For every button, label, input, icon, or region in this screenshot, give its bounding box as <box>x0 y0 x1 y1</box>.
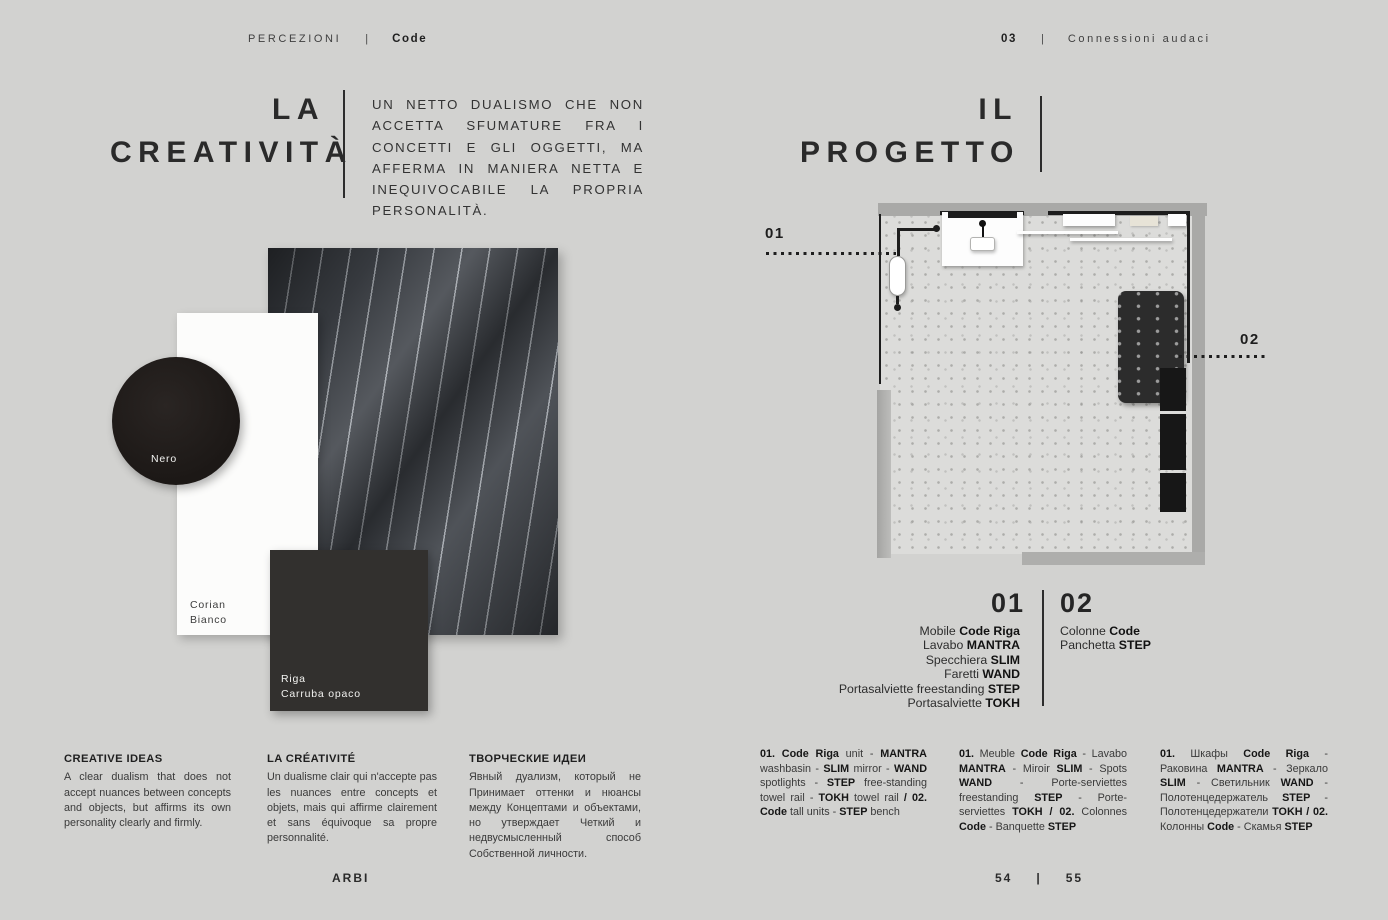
nero-label: Nero <box>151 452 177 467</box>
plan-wall-right <box>1192 203 1205 560</box>
tall-unit-2 <box>1160 414 1186 470</box>
legend-list-01: Mobile Code Riga Lavabo MANTRA Specchier… <box>790 624 1020 710</box>
callout-01-label: 01 <box>765 225 785 242</box>
chapter-label: Connessioni audaci <box>1068 33 1211 45</box>
page-numbers: 54 | 55 <box>995 871 1083 885</box>
washbasin-backsplash <box>948 212 1017 218</box>
callout-02-label: 02 <box>1240 331 1260 348</box>
column-fr: LA CRÉATIVITÉ Un dualisme clair qui n'ac… <box>267 752 437 847</box>
collection-label: Code <box>392 33 427 45</box>
plan-desc-fr: 01. Meuble Code Riga - Lavabo MANTRA - M… <box>959 747 1127 835</box>
header-divider: | <box>365 33 368 45</box>
towel-rail-post <box>897 228 900 256</box>
plan-desc-en: 01. Code Riga unit - MANTRA washbasin - … <box>760 747 927 820</box>
legend-item: Lavabo MANTRA <box>790 638 1020 652</box>
shelf-beige <box>1130 216 1158 226</box>
freestanding-rail-pill <box>889 256 906 296</box>
legend-item: Colonne Code <box>1060 624 1230 638</box>
legend-divider <box>1042 590 1044 706</box>
page-number-right: 55 <box>1066 871 1083 885</box>
mirror-slim <box>1017 231 1118 234</box>
column-fr-body: Un dualisme clair qui n'accepte pas les … <box>267 770 437 846</box>
tall-unit-3 <box>1160 473 1186 512</box>
riga-label: Riga Carruba opaco <box>281 672 361 702</box>
basin-bowl <box>970 237 995 251</box>
column-fr-title: LA CRÉATIVITÉ <box>267 752 437 767</box>
legend-item: Mobile Code Riga <box>790 624 1020 638</box>
shelf-b <box>1168 214 1186 226</box>
towel-rail-arm <box>897 228 936 231</box>
brand-label: ARBI <box>332 871 369 885</box>
rail-stub <box>896 296 899 304</box>
column-ru-body: Явный дуализм, который не Принимает отте… <box>469 770 641 862</box>
plan-innerwall-left <box>879 214 881 384</box>
legend-list-02: Colonne Code Panchetta STEP <box>1060 624 1230 653</box>
floor-plan: 01 02 <box>758 195 1288 580</box>
intro-paragraph: UN NETTO DUALISMO CHE NON ACCETTA SFUMAT… <box>372 94 644 222</box>
legend-number-02: 02 <box>1060 588 1094 619</box>
page-title-creativita: LA CREATIVITÀ <box>110 88 325 174</box>
chapter-number: 03 <box>1001 33 1017 45</box>
page-number-divider: | <box>1036 871 1041 885</box>
title-rule-right <box>1040 96 1042 172</box>
header-right: 03 | Connessioni audaci <box>1001 33 1211 45</box>
corian-label: Corian Bianco <box>190 598 227 628</box>
legend-item: Specchiera SLIM <box>790 653 1020 667</box>
callout-01-leader <box>766 252 896 255</box>
towel-rail-end-dot <box>933 225 940 232</box>
legend-item: Portasalviette freestanding STEP <box>790 682 1020 696</box>
plan-desc-ru: 01. Шкафы Code Riga - Раковина MANTRA - … <box>1160 747 1328 835</box>
towel-rail-tokh <box>1070 238 1172 241</box>
title-rule-left <box>343 90 345 198</box>
page-number-left: 54 <box>995 871 1012 885</box>
plan-wall-bottom <box>1022 552 1205 565</box>
tall-unit-1 <box>1160 368 1186 411</box>
washbasin-unit <box>942 212 1023 266</box>
section-label: PERCEZIONI <box>248 33 341 45</box>
header-divider: | <box>1041 33 1044 45</box>
callout-02-leader <box>1179 355 1268 358</box>
column-en-title: CREATIVE IDEAS <box>64 752 231 767</box>
page-title-progetto: IL PROGETTO <box>800 88 1018 174</box>
column-en-body: A clear dualism that does not accept nua… <box>64 770 231 831</box>
column-ru: ТВОРЧЕСКИЕ ИДЕИ Явный дуализм, который н… <box>469 752 641 862</box>
door-leaf <box>877 390 891 558</box>
header-left: PERCEZIONI | Code <box>248 33 427 45</box>
shelf-a <box>1063 214 1115 226</box>
legend-item: Portasalviette TOKH <box>790 696 1020 710</box>
column-en: CREATIVE IDEAS A clear dualism that does… <box>64 752 231 831</box>
legend-number-01: 01 <box>940 588 1025 619</box>
legend-item: Panchetta STEP <box>1060 638 1230 652</box>
legend-item: Faretti WAND <box>790 667 1020 681</box>
column-ru-title: ТВОРЧЕСКИЕ ИДЕИ <box>469 752 641 767</box>
plan-innerwall-right <box>1187 211 1190 363</box>
rail-foot-dot <box>894 304 901 311</box>
